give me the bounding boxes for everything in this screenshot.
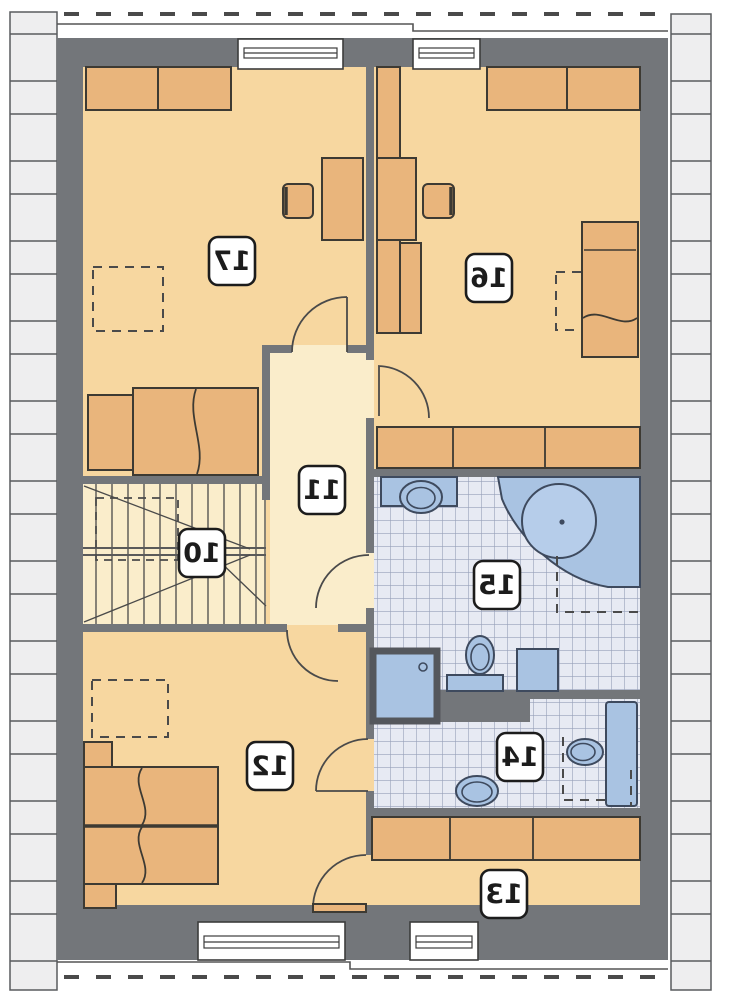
desk-16 — [377, 158, 416, 240]
bed-17 — [133, 388, 258, 475]
room-label-13-text: 13 — [485, 879, 523, 910]
toilet-15-tank — [447, 675, 503, 691]
desk-17 — [322, 158, 363, 240]
room-label-10-text: 10 — [183, 538, 221, 569]
bed-16 — [582, 222, 638, 357]
wardrobe-17-a — [86, 67, 158, 110]
wall-14-13 — [366, 808, 640, 817]
room-label-12-text: 12 — [251, 751, 289, 782]
top-eave-line — [57, 24, 668, 31]
window-room16 — [413, 39, 480, 69]
nightstand-12-a — [84, 742, 112, 767]
room-label-17-text: 17 — [213, 246, 251, 277]
door-13-leaf — [313, 904, 366, 912]
exterior-wall-right — [640, 38, 668, 960]
nightstand-12-b — [84, 884, 116, 908]
bed-17-headboard — [88, 395, 133, 470]
room-label-16: 16 — [466, 254, 512, 302]
wall-17-stairs — [83, 476, 266, 484]
floor-plan-drawing: 10 11 12 13 14 15 16 17 — [0, 0, 729, 1000]
wardrobe-17-b — [158, 67, 231, 110]
left-masonry-hatch — [10, 12, 57, 990]
room13-furniture — [372, 817, 640, 860]
hall-top-wall-left — [262, 345, 292, 353]
room-label-14: 14 — [497, 733, 543, 781]
wall-16-15 — [366, 469, 640, 477]
shelf-16-block — [400, 243, 421, 333]
exterior-wall-left — [57, 38, 83, 960]
bidet-15 — [517, 649, 558, 691]
hall-top-wall-right — [347, 345, 374, 353]
room-label-16-text: 16 — [470, 263, 508, 294]
toilet-15-bowl — [466, 636, 494, 674]
floor-plan: 10 11 12 13 14 15 16 17 — [0, 0, 729, 1000]
window-room17 — [238, 39, 343, 69]
room-label-15-text: 15 — [478, 570, 516, 601]
room-label-13: 13 — [481, 870, 527, 918]
room-label-12: 12 — [247, 742, 293, 790]
wardrobe-row-16 — [377, 427, 640, 468]
room-label-15: 15 — [474, 561, 520, 609]
right-masonry-hatch — [671, 14, 711, 990]
wardrobe-16-a — [487, 67, 567, 110]
shower-15 — [373, 651, 437, 721]
partition-spine-b — [366, 418, 374, 553]
bathtub-15-drain — [559, 519, 564, 524]
wardrobe-row-13 — [372, 817, 640, 860]
room-label-11: 11 — [299, 466, 345, 514]
shower-column-14 — [606, 702, 637, 806]
window-room12 — [198, 922, 345, 960]
room12-furniture — [84, 742, 218, 908]
room-label-17: 17 — [209, 237, 255, 285]
wall-stairs-12 — [83, 624, 287, 632]
window-room13 — [410, 922, 478, 960]
exterior-wall-top — [57, 38, 668, 67]
bottom-eave-line — [57, 962, 668, 969]
corner-bathtub-15 — [522, 484, 596, 558]
wall-hall-12-stub — [338, 624, 374, 632]
room-label-14-text: 14 — [501, 742, 539, 773]
partition-spine-a — [366, 67, 374, 360]
wardrobe-16-b — [567, 67, 640, 110]
room-label-10: 10 — [179, 529, 225, 577]
room-label-11-text: 11 — [303, 475, 341, 506]
exterior-wall-bottom — [57, 905, 668, 960]
